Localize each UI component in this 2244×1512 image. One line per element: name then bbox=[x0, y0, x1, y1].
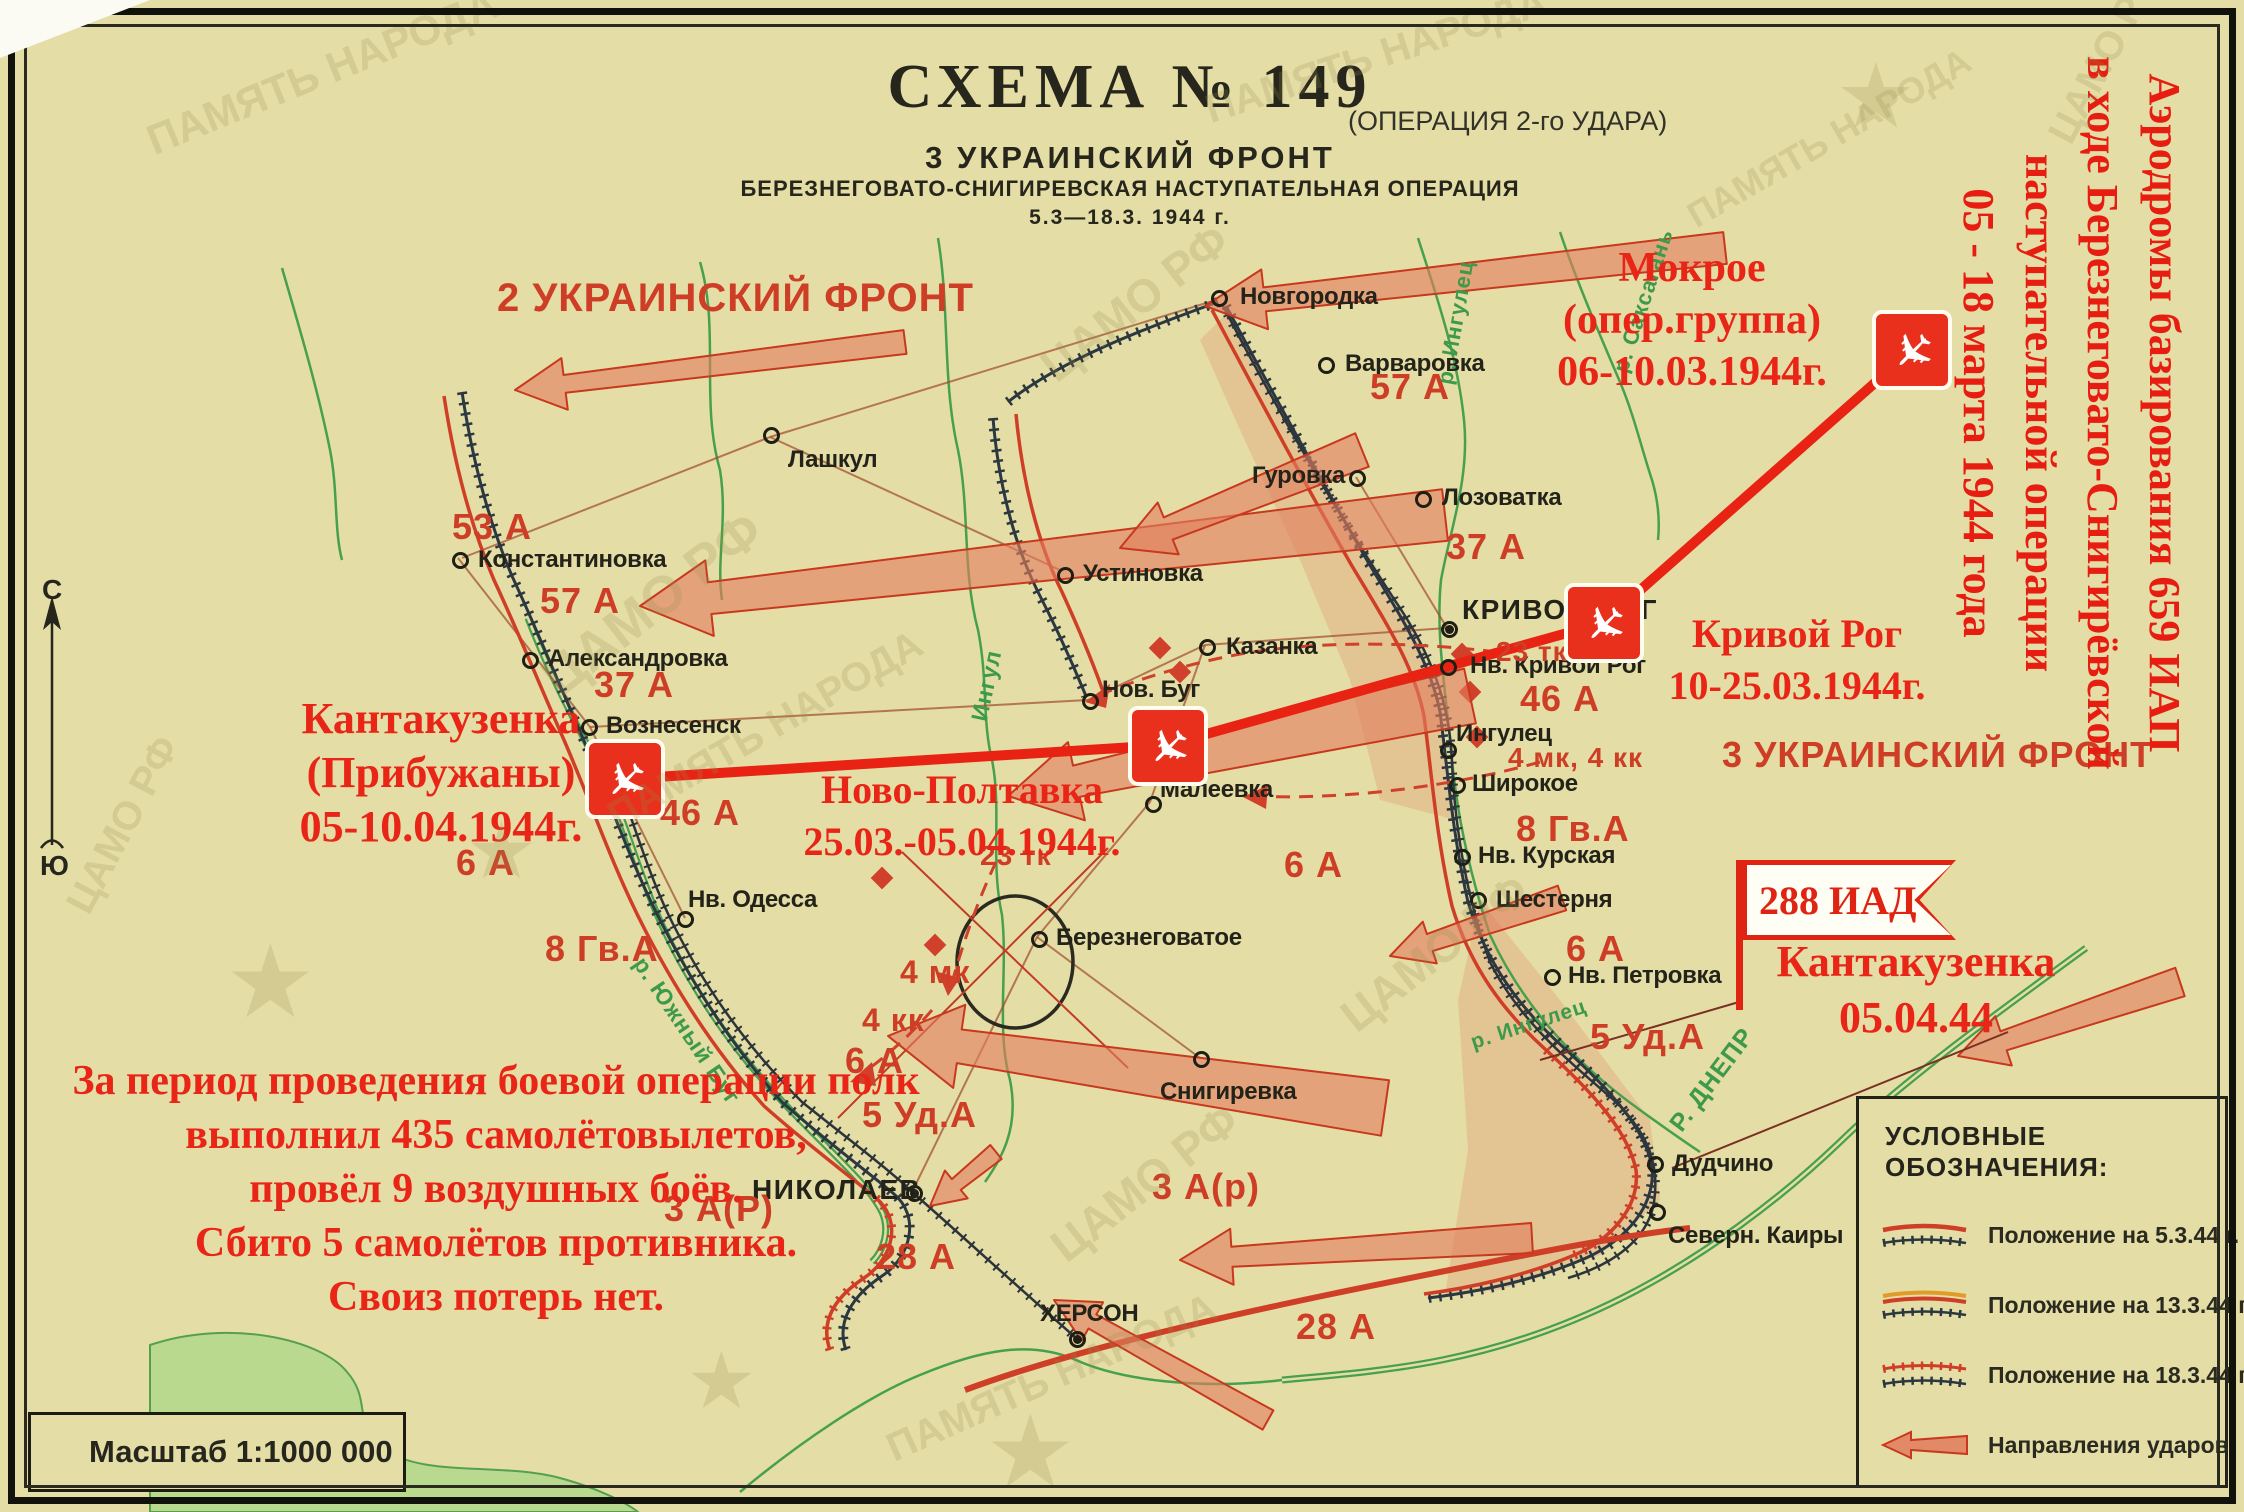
annotation-line: Кантакузенка bbox=[256, 692, 626, 746]
legend-title: УСЛОВНЫЕ ОБОЗНАЧЕНИЯ: bbox=[1877, 1121, 2217, 1183]
legend-symbol-position-13-3-icon bbox=[1877, 1287, 1972, 1323]
city-marker bbox=[1470, 892, 1487, 909]
legend-label: Положение на 5.3.44 г. bbox=[1988, 1222, 2239, 1249]
annotation-line: Мокрое bbox=[1522, 242, 1862, 294]
side-annotation-line: Аэродромы базирования 659 ИАП bbox=[2133, 33, 2195, 793]
city-marker bbox=[522, 652, 539, 669]
city-label: Новгородка bbox=[1240, 283, 1378, 311]
city-label: ХЕРСОН bbox=[1040, 1300, 1138, 1328]
side-annotation: Аэродромы базирования 659 ИАП в ходе Бер… bbox=[1945, 33, 2195, 793]
legend-symbol-position-18-3-icon bbox=[1877, 1357, 1972, 1393]
airplane-icon: ✈ bbox=[1878, 316, 1946, 384]
side-annotation-line: в ходе Березнеговато-Снигирёвской bbox=[2071, 33, 2133, 793]
airfield-annotation-kantakuzenka-pribuzhany: Кантакузенка(Прибужаны)05-10.04.1944г. bbox=[256, 692, 626, 854]
city-marker bbox=[1544, 969, 1561, 986]
legend-item: Направления ударов bbox=[1877, 1427, 2217, 1463]
city-marker bbox=[1647, 1156, 1664, 1173]
map-page: НовгородкаВарваровкаГуровкаЛозоваткаЛашк… bbox=[0, 0, 2244, 1512]
army-label: 53 А bbox=[452, 506, 532, 548]
annotation-line: 10-25.03.1944г. bbox=[1642, 660, 1952, 712]
side-annotation-line: 05 - 18 марта 1944 года bbox=[1947, 33, 2009, 793]
city-marker bbox=[1211, 290, 1228, 307]
flag-caption-line: Кантакузенка bbox=[1746, 934, 2086, 990]
annotation-line: Кривой Рог bbox=[1642, 608, 1952, 660]
airfield-icon-mokroe: ✈ bbox=[1872, 310, 1952, 390]
annotation-line: 05-10.04.1944г. bbox=[256, 800, 626, 854]
army-label: 6 А bbox=[1284, 844, 1343, 886]
annotation-line: 06-10.03.1944г. bbox=[1522, 346, 1862, 398]
city-marker bbox=[1649, 1204, 1666, 1221]
city-marker bbox=[1069, 1331, 1086, 1348]
city-label: Константиновка bbox=[478, 546, 666, 574]
city-marker bbox=[1199, 639, 1216, 656]
legend-label: Положение на 18.3.44 г. bbox=[1988, 1362, 2244, 1389]
army-label: 8 Гв.А bbox=[1516, 808, 1630, 850]
army-label: 46 А bbox=[1520, 678, 1600, 720]
city-label: Шестерня bbox=[1496, 886, 1612, 914]
legend-item: Положение на 5.3.44 г. bbox=[1877, 1217, 2217, 1253]
summary-line: Своиз потерь нет. bbox=[16, 1270, 976, 1324]
flag-pole bbox=[1736, 860, 1743, 1010]
annotation-line: Ново-Полтавка bbox=[772, 764, 1152, 816]
stream bbox=[282, 268, 342, 560]
city-marker bbox=[1082, 693, 1099, 710]
map-subtitle-dates: 5.3—18.3. 1944 г. bbox=[700, 206, 1560, 230]
army-label: 23 тк bbox=[1496, 636, 1568, 668]
legend-symbol-position-5-3-icon bbox=[1877, 1217, 1972, 1253]
airfield-icon-krivoy-rog: ✈ bbox=[1564, 583, 1644, 663]
compass-south-label: Ю bbox=[40, 850, 69, 882]
city-label: Дудчино bbox=[1672, 1150, 1773, 1178]
city-marker bbox=[1454, 849, 1471, 866]
army-label: 5 Уд.А bbox=[1590, 1016, 1705, 1058]
division-flag-label: 288 ИАД bbox=[1759, 877, 1917, 924]
legend-item: Положение на 13.3.44 г. bbox=[1877, 1287, 2217, 1323]
city-marker bbox=[1441, 621, 1458, 638]
city-marker bbox=[1440, 659, 1457, 676]
army-label: 2 УКРАИНСКИЙ ФРОНТ bbox=[497, 276, 974, 321]
compass bbox=[41, 596, 63, 848]
division-flag-caption: Кантакузенка 05.04.44 bbox=[1746, 934, 2086, 1046]
army-label: 3 А(р) bbox=[1152, 1166, 1260, 1208]
city-label: Северн. Каиры bbox=[1668, 1222, 1843, 1250]
city-label: Нов. Буг bbox=[1102, 676, 1200, 704]
annotation-line: 25.03.-05.04.1944г. bbox=[772, 816, 1152, 868]
summary-line: провёл 9 воздушных боёв. bbox=[16, 1162, 976, 1216]
airfield-annotation-mokroe: Мокрое(опер.группа)06-10.03.1944г. bbox=[1522, 242, 1862, 398]
flag-caption-line: 05.04.44 bbox=[1746, 990, 2086, 1046]
army-label: 57 А bbox=[1370, 366, 1450, 408]
army-label: 4 мк bbox=[900, 954, 970, 991]
scale-label: Масштаб 1:1000 000 bbox=[89, 1434, 393, 1470]
city-label: Гуровка bbox=[1252, 462, 1345, 490]
city-label: Березнеговатое bbox=[1056, 924, 1242, 952]
map-subtitle-operation: БЕРЕЗНЕГОВАТО-СНИГИРЕВСКАЯ НАСТУПАТЕЛЬНА… bbox=[700, 176, 1560, 202]
airfield-annotation-novo-poltavka: Ново-Полтавка25.03.-05.04.1944г. bbox=[772, 764, 1152, 868]
army-label: 37 А bbox=[1446, 526, 1526, 568]
city-label: Нв. Одесса bbox=[688, 886, 817, 914]
city-label: Снигиревка bbox=[1160, 1078, 1296, 1106]
city-marker bbox=[1349, 470, 1366, 487]
map-title-note: (ОПЕРАЦИЯ 2-го УДАРА) bbox=[1348, 106, 1667, 137]
scale-box: Масштаб 1:1000 000 bbox=[28, 1412, 406, 1492]
city-label: Лашкул bbox=[788, 446, 877, 474]
army-label: 8 Гв.А bbox=[545, 928, 659, 970]
summary-line: выполнил 435 самолётовылетов, bbox=[16, 1108, 976, 1162]
legend-box: УСЛОВНЫЕ ОБОЗНАЧЕНИЯ: Положение на 5.3.4… bbox=[1856, 1096, 2228, 1488]
city-marker bbox=[1415, 491, 1432, 508]
city-label: Казанка bbox=[1226, 633, 1317, 661]
summary-line: Сбито 5 самолётов противника. bbox=[16, 1216, 976, 1270]
annotation-line: (опер.группа) bbox=[1522, 294, 1862, 346]
city-marker bbox=[1318, 357, 1335, 374]
city-marker bbox=[1449, 777, 1466, 794]
map-subtitle-front: 3 УКРАИНСКИЙ ФРОНТ bbox=[790, 140, 1470, 176]
summary-line: За период проведения боевой операции пол… bbox=[16, 1054, 976, 1108]
army-label: 46 А bbox=[660, 792, 740, 834]
legend-item: Положение на 18.3.44 г. bbox=[1877, 1357, 2217, 1393]
army-label: 4 мк, 4 кк bbox=[1508, 742, 1643, 774]
city-label: Широкое bbox=[1472, 770, 1578, 798]
city-marker bbox=[1193, 1051, 1210, 1068]
city-marker bbox=[1031, 931, 1048, 948]
airplane-icon: ✈ bbox=[1570, 589, 1638, 657]
army-label: 57 А bbox=[540, 580, 620, 622]
legend-symbol-attack-arrow-icon bbox=[1877, 1427, 1972, 1463]
city-marker bbox=[763, 427, 780, 444]
compass-north-label: С bbox=[42, 574, 62, 606]
city-label: Вознесенск bbox=[606, 712, 741, 740]
legend-label: Направления ударов bbox=[1988, 1432, 2229, 1459]
airfield-annotation-krivoy-rog: Кривой Рог10-25.03.1944г. bbox=[1642, 608, 1952, 712]
city-marker bbox=[1057, 567, 1074, 584]
city-label: Устиновка bbox=[1083, 560, 1203, 588]
city-marker bbox=[452, 552, 469, 569]
annotation-line: (Прибужаны) bbox=[256, 746, 626, 800]
combat-summary: За период проведения боевой операции пол… bbox=[16, 1054, 976, 1324]
side-annotation-line: наступательной операции bbox=[2009, 33, 2071, 793]
city-marker bbox=[1440, 742, 1457, 759]
legend-label: Положение на 13.3.44 г. bbox=[1988, 1292, 2244, 1319]
army-label: 6 А bbox=[1566, 928, 1625, 970]
army-label: 28 А bbox=[1296, 1306, 1376, 1348]
city-label: Лозоватка bbox=[1442, 484, 1561, 512]
army-label: 4 кк bbox=[862, 1002, 925, 1039]
